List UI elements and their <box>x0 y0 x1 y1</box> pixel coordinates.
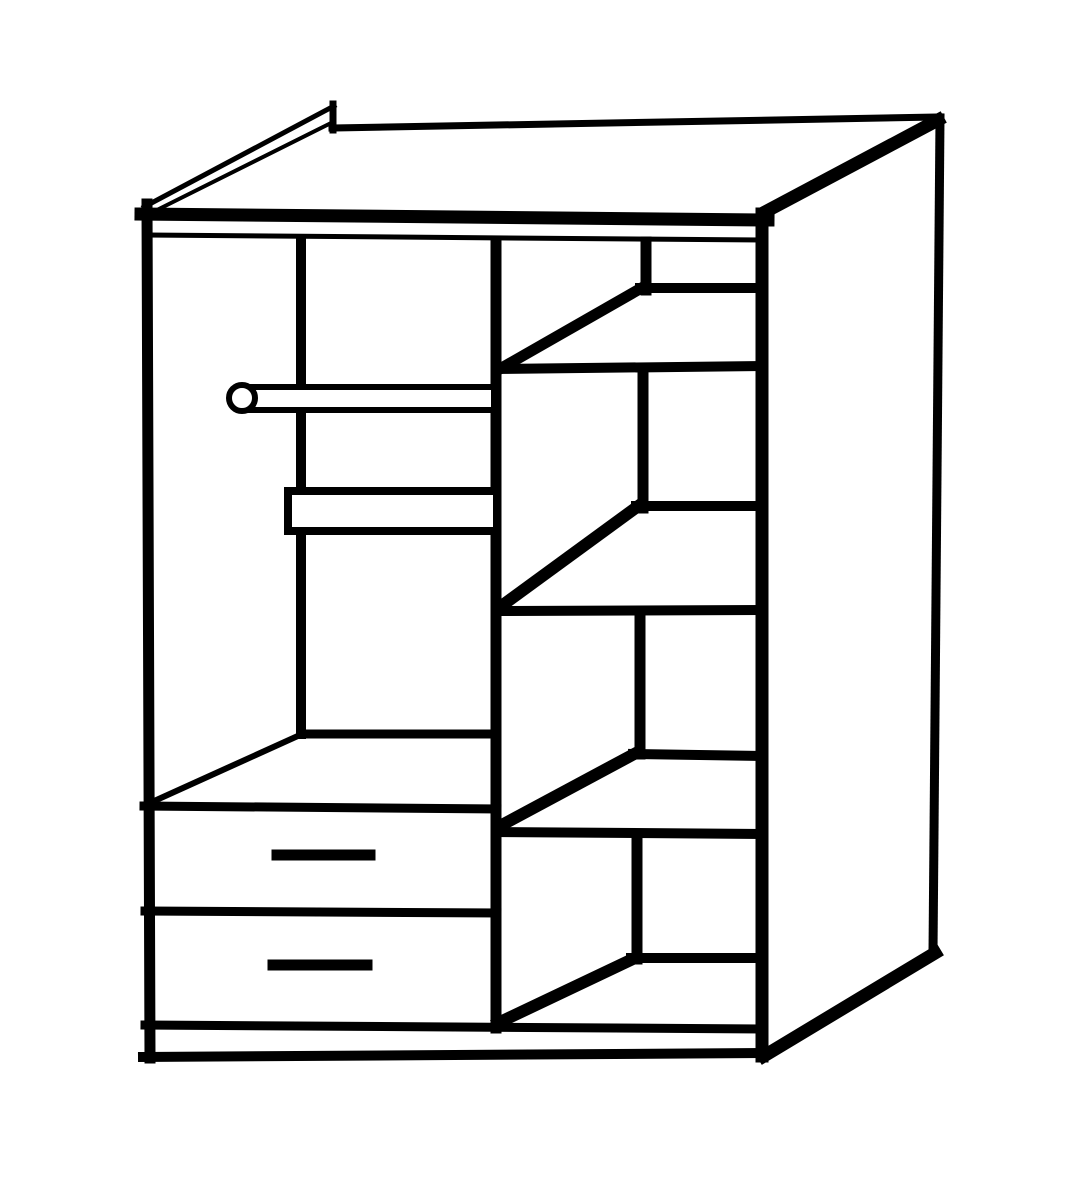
shelf-2-front-edge <box>496 610 763 611</box>
right-side-panel-top-edge <box>765 120 938 212</box>
shelf-4-diagonal <box>498 958 635 1023</box>
top-panel-left-edge-inner <box>151 123 331 213</box>
shelf-1-diagonal <box>498 286 645 370</box>
base-bottom-edge <box>143 1053 766 1057</box>
shelf-1-front-edge <box>496 366 763 369</box>
drawer-separator <box>145 911 497 913</box>
interior-ceiling-line <box>147 235 760 240</box>
top-panel-back-edge <box>332 117 940 128</box>
shelf-3-diagonal <box>500 753 636 826</box>
wardrobe-interior-diagram <box>0 0 1092 1200</box>
shelf-3-front-edge <box>496 832 763 834</box>
top-panel-front-edge <box>141 214 768 220</box>
hanging-rail-bar <box>248 387 494 410</box>
shelf-3-back-edge <box>633 754 763 756</box>
floor-left-edge <box>152 735 300 802</box>
right-side-panel-back-edge <box>933 118 940 953</box>
plinth-top-edge <box>145 1025 762 1029</box>
hanging-rail-end-cap <box>229 385 255 411</box>
drawer-top-edge <box>144 806 497 809</box>
shelf-2-diagonal <box>500 504 641 607</box>
right-side-panel-bottom-edge <box>764 953 935 1056</box>
top-panel-left-edge-outer <box>144 106 334 207</box>
wardrobe-diagram-page <box>0 0 1092 1200</box>
support-board <box>288 491 497 531</box>
left-side-panel-edge <box>147 204 150 1058</box>
